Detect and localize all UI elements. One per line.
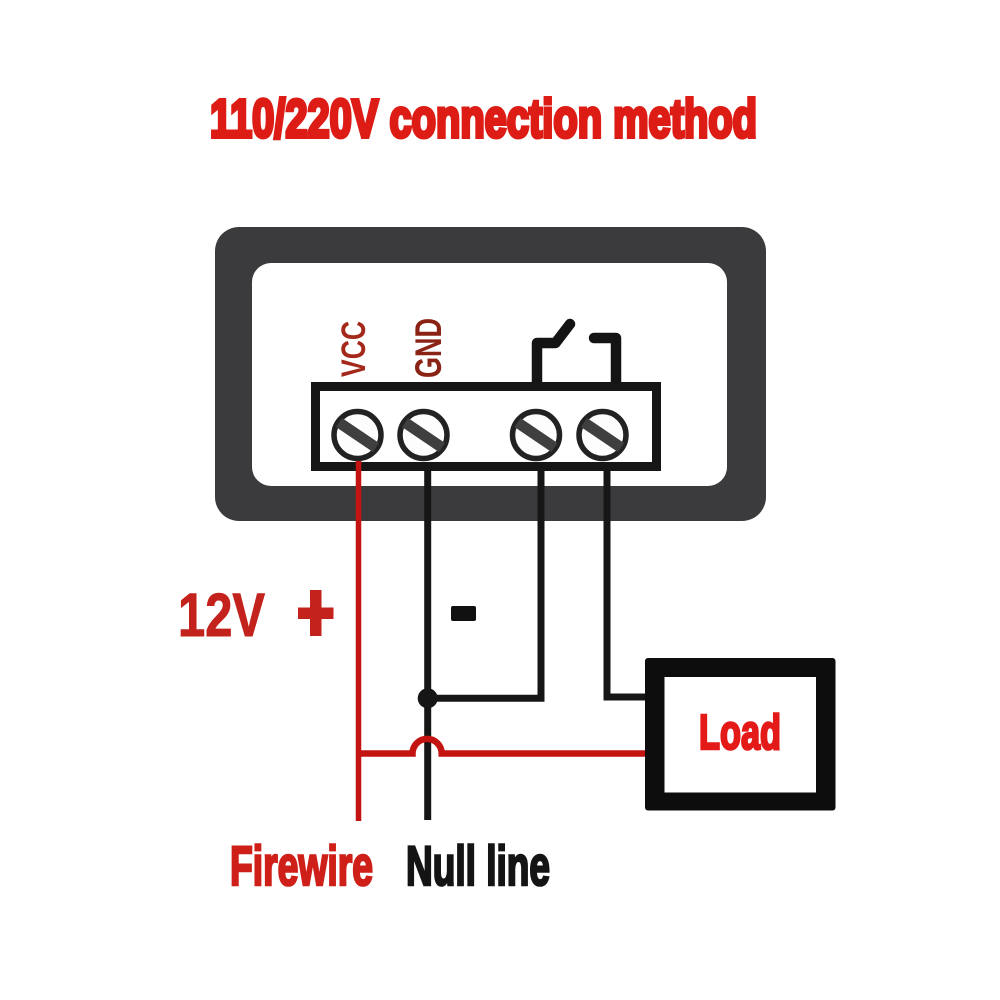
svg-text:110/220V connection method: 110/220V connection method (210, 89, 757, 149)
svg-text:GND: GND (408, 318, 449, 378)
svg-text:Null line: Null line (406, 834, 550, 897)
svg-text:VCC: VCC (335, 321, 373, 377)
svg-text:Firewire: Firewire (230, 834, 373, 897)
svg-text:Load: Load (699, 706, 781, 760)
svg-text:12V: 12V (178, 581, 265, 649)
